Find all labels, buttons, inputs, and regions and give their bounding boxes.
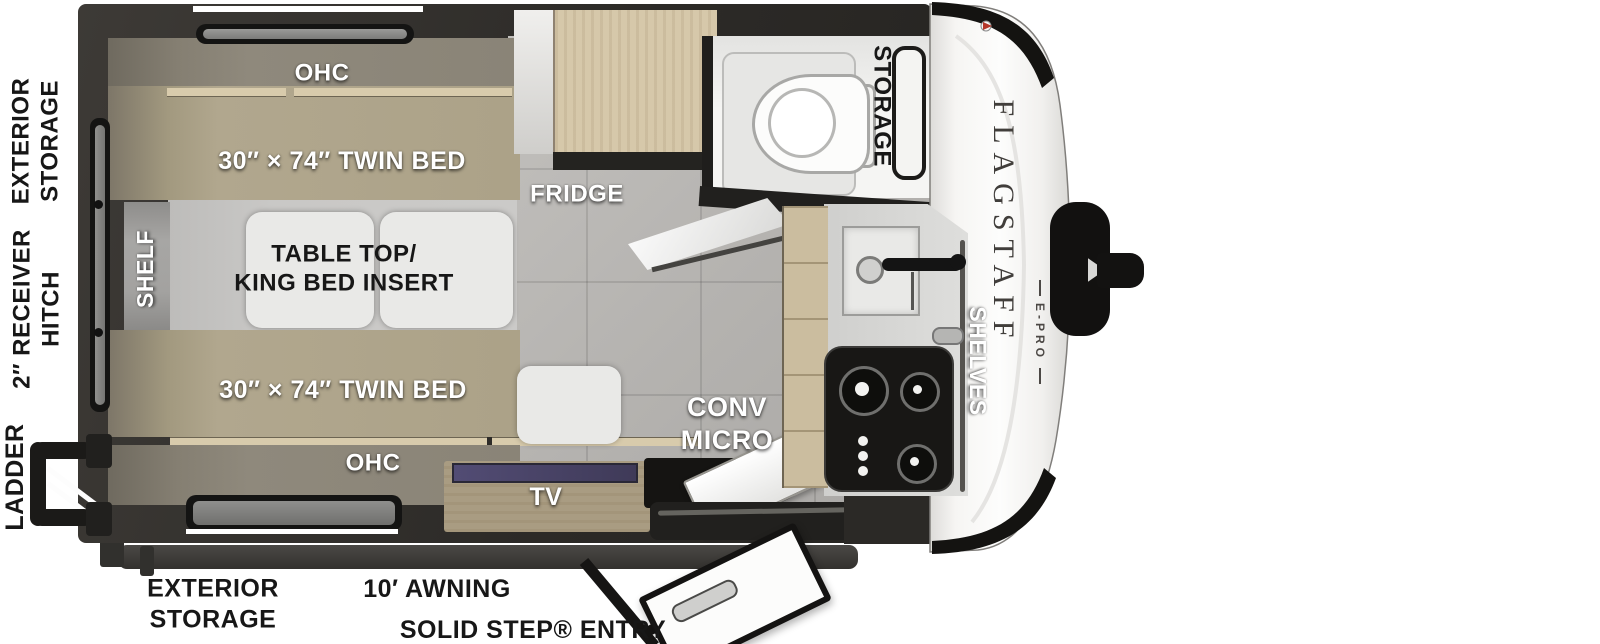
stove-knob (858, 466, 868, 476)
ladder-rung (34, 509, 92, 526)
label-tv: TV (530, 482, 563, 512)
label-receiver-hitch: 2″ RECEIVERHITCH (8, 229, 67, 389)
window-rear-glass (95, 125, 105, 405)
sublogo-rule (1039, 280, 1041, 296)
label-twin-bed-bottom: 30″ × 74″ TWIN BED (219, 375, 467, 405)
brand-logo: FLAGSTAFF (986, 100, 1020, 347)
counter-latch (932, 327, 964, 345)
label-ohc-top: OHC (295, 60, 350, 89)
label-ohc-bottom: OHC (346, 450, 401, 479)
step-handle (669, 577, 740, 625)
body-trim-strip (186, 529, 398, 534)
side-table (517, 366, 621, 444)
hitch-coupler (1097, 253, 1144, 288)
toilet-bowl (768, 88, 836, 158)
label-twin-bed-top: 30″ × 74″ TWIN BED (218, 146, 466, 176)
storage-niche (892, 46, 926, 180)
faucet-tip (950, 254, 966, 270)
kitchen-drawers (782, 206, 828, 488)
window-top-glass (203, 29, 407, 39)
ladder-rung (34, 442, 92, 459)
window-bottom-glass (193, 501, 395, 525)
tv-screen (452, 463, 638, 483)
stove-knob (858, 451, 868, 461)
sublogo-rule (1039, 368, 1041, 384)
label-shelves: SHELVES (963, 306, 991, 415)
stove-burner-cap (910, 457, 919, 466)
sink-drain (856, 256, 884, 284)
fridge-cabinet-shadow (553, 152, 715, 170)
stove-burner-cap (855, 382, 869, 396)
stove-burner-cap (913, 385, 922, 394)
label-awning: 10′ AWNING (363, 574, 511, 604)
label-shelf: SHELF (132, 230, 160, 308)
awning-bracket (100, 540, 124, 567)
label-bath-storage: STORAGE (867, 45, 896, 167)
twin-bed-top (108, 86, 520, 200)
label-table-top: TABLE TOP/KING BED INSERT (234, 240, 454, 299)
label-exterior-storage-bottom: EXTERIORSTORAGE (147, 574, 279, 635)
window-latch (94, 328, 103, 337)
wardrobe (514, 10, 556, 154)
label-solid-step-entry: SOLID STEP® ENTRY (400, 615, 666, 644)
label-exterior-storage-rear: EXTERIORSTORAGE (7, 78, 66, 205)
stove-knob (858, 436, 868, 446)
fridge-cabinet (553, 10, 717, 154)
ladder-mount (86, 502, 112, 536)
bed-rail (294, 88, 512, 97)
awning-bracket (140, 546, 154, 576)
brand-sublogo: E-PRO (1033, 280, 1047, 384)
label-ladder: LADDER (0, 423, 30, 530)
floorplan-canvas: FLAGSTAFF E-PRO EXTERIORSTORAGE 2″ RECEI… (0, 0, 1600, 644)
roof-trim-strip (193, 6, 423, 12)
label-conv-micro: CONVMICRO (681, 391, 774, 457)
ladder-mount (86, 434, 112, 468)
label-fridge: FRIDGE (530, 181, 624, 210)
bed-rail (167, 88, 286, 97)
window-latch (94, 200, 103, 209)
faucet-handle (911, 272, 914, 310)
